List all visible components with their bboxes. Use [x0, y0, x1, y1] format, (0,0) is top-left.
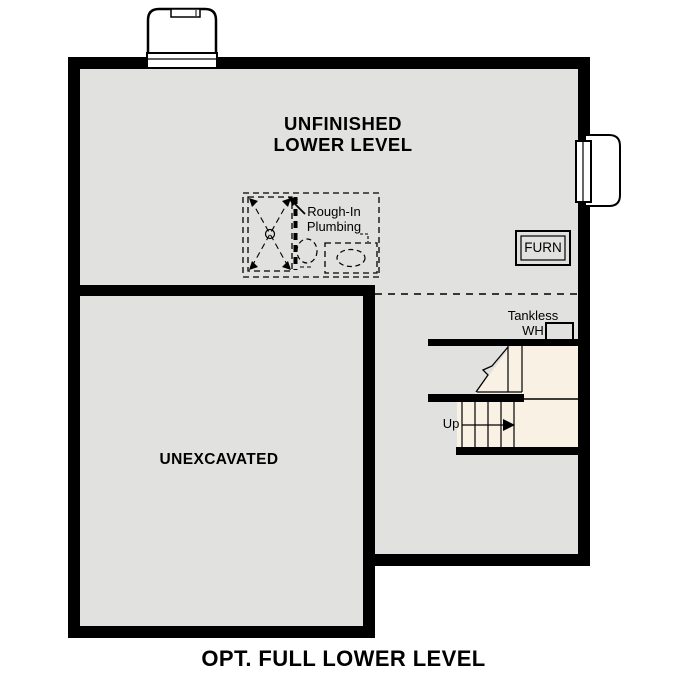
wall-bottom-left-section: [68, 626, 375, 638]
wall-divider: [68, 285, 375, 296]
rough-in-plumbing-label: Rough-In Plumbing: [298, 205, 370, 234]
rough-in-label-line1: Rough-In: [298, 205, 370, 220]
furnace-label: FURN: [516, 240, 570, 255]
tankless-wh-label: Tankless WH: [495, 309, 571, 338]
stair-wall-bottom: [456, 447, 578, 455]
tankless-label-line1: Tankless: [495, 309, 571, 324]
wall-right: [578, 57, 590, 566]
plan-title: OPT. FULL LOWER LEVEL: [0, 646, 687, 672]
floor-plan: UNFINISHED LOWER LEVEL Rough-In Plumbing…: [0, 0, 687, 687]
room-label-unexcavated: UNEXCAVATED: [119, 451, 319, 469]
tankless-label-line2: WH: [495, 324, 571, 339]
room-label-unfinished: UNFINISHED LOWER LEVEL: [223, 113, 463, 155]
wall-left: [68, 57, 80, 638]
floor-plan-drawing: [0, 0, 687, 687]
stair-wall-top: [428, 339, 578, 346]
wall-center-vertical: [363, 285, 375, 638]
room-label-unfinished-line2: LOWER LEVEL: [223, 134, 463, 155]
room-label-unfinished-line1: UNFINISHED: [223, 113, 463, 134]
wall-bottom-right-section: [363, 554, 590, 566]
window-well-right: [576, 135, 620, 206]
basement-window-top: [147, 53, 217, 68]
stairs-up-label: Up: [437, 417, 465, 432]
rough-in-label-line2: Plumbing: [298, 220, 370, 235]
floor-unfinished-area: [80, 69, 578, 285]
window-well-top: [147, 9, 217, 68]
stair-wall-middle: [428, 394, 524, 402]
